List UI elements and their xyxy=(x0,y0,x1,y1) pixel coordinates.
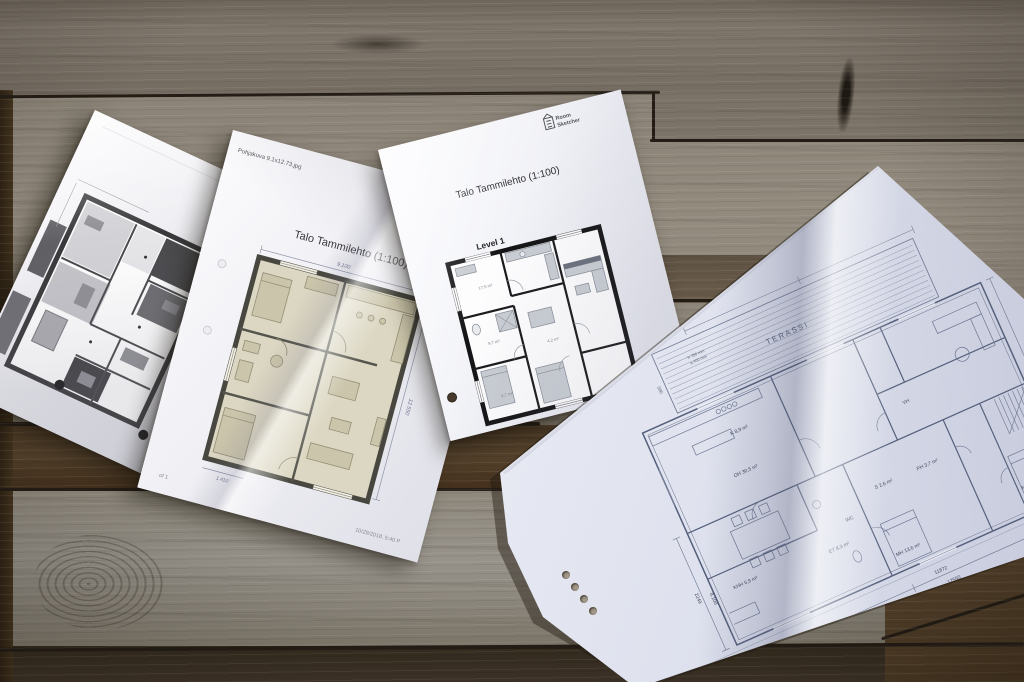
building-icon xyxy=(542,113,554,130)
room-label: MH 13,6 m² xyxy=(895,542,922,558)
punch-hole xyxy=(217,259,227,269)
dim-height: 12.550 xyxy=(403,398,413,417)
punch-hole xyxy=(202,325,212,335)
punch-hole xyxy=(447,392,458,403)
dim-bottom: 1.410 xyxy=(215,476,229,485)
punch-hole xyxy=(137,428,150,441)
room-label: VH xyxy=(902,398,911,406)
doc-title: Talo Tammilehto (1:100) xyxy=(455,165,561,201)
room-label: WC xyxy=(845,515,855,524)
file-name: Pohjakuva 9.1x12.73.jpg xyxy=(237,148,302,171)
punch-hole xyxy=(571,583,579,591)
dim-11872: 11872 xyxy=(934,565,949,576)
room-label: S 2,6 m² xyxy=(874,478,894,491)
roomsketcher-logo: Room Sketcher xyxy=(542,106,581,131)
page-indicator: of 1 xyxy=(158,473,168,481)
room-label: PH 3,7 m² xyxy=(916,458,939,473)
dim-8100: 8.100 xyxy=(708,592,719,606)
room-label: ET 8,3 m² xyxy=(828,541,851,556)
stairs xyxy=(994,385,1024,434)
punch-hole xyxy=(562,571,570,579)
punch-hole xyxy=(580,595,588,603)
room-label: KHH 6,9 m² xyxy=(732,575,759,591)
photo-scene: Pohjakuva 9.1x12.73.jpg Talo Tammilehto … xyxy=(0,0,1024,682)
room-label: K 8,9 m² xyxy=(729,424,749,437)
room-label: OH 30,5 m² xyxy=(733,463,759,479)
print-timestamp: 10/29/2018, 5:40 P xyxy=(354,527,401,545)
punch-hole xyxy=(589,607,597,615)
dim-580: 580 xyxy=(656,386,664,395)
terrace-label: TERASSI xyxy=(765,320,811,347)
